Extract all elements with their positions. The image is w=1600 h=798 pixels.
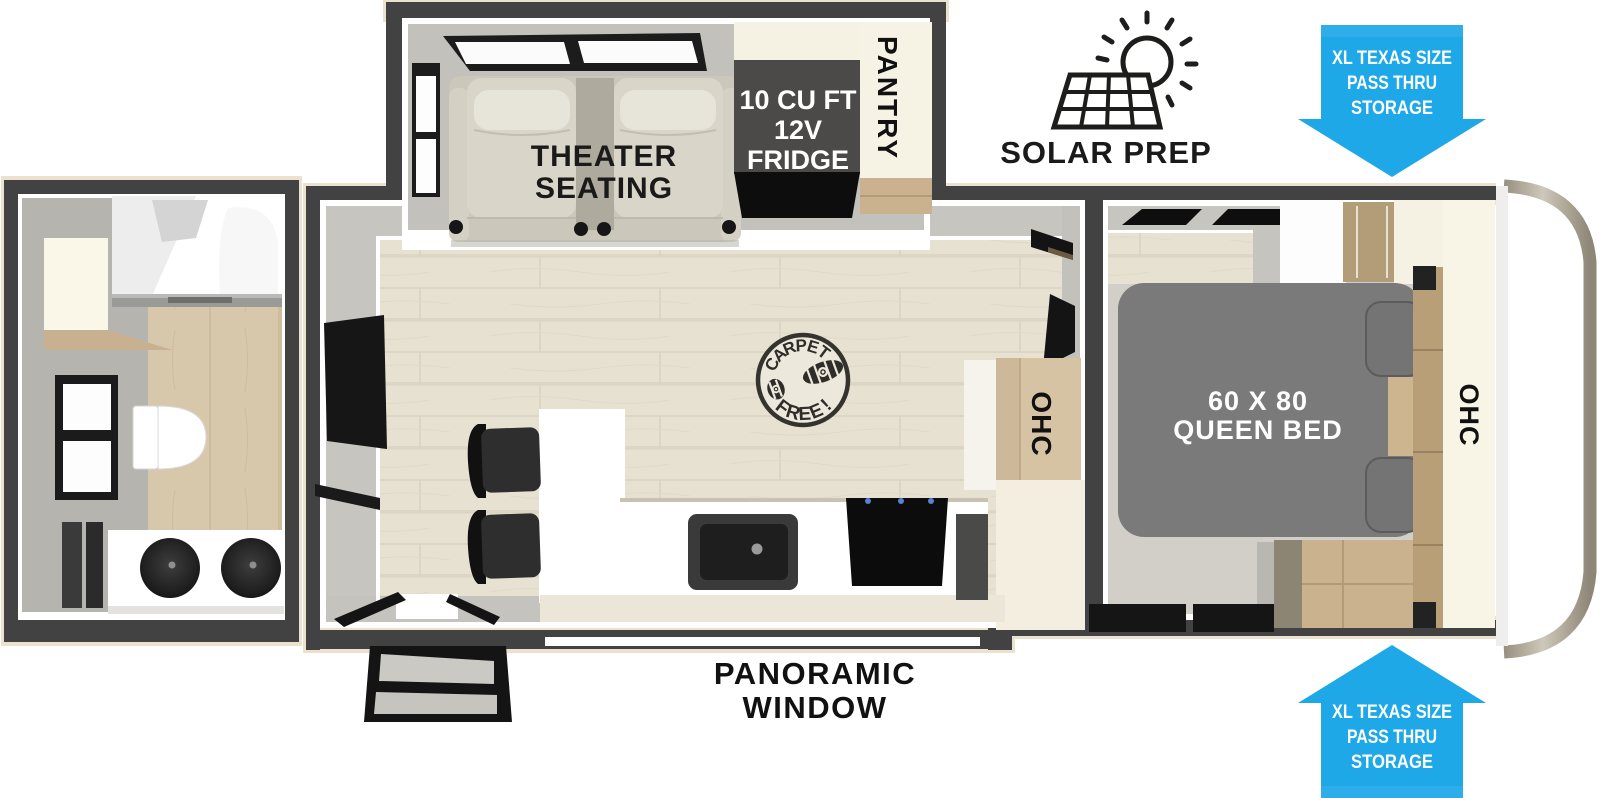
svg-text:THEATER: THEATER — [531, 140, 677, 173]
svg-text:PASS THRU: PASS THRU — [1347, 727, 1437, 748]
svg-text:STORAGE: STORAGE — [1351, 98, 1433, 119]
svg-text:OHC: OHC — [1454, 384, 1484, 447]
svg-text:SOLAR PREP: SOLAR PREP — [1000, 135, 1212, 170]
svg-text:60 X 80: 60 X 80 — [1208, 386, 1308, 416]
svg-text:PANORAMIC: PANORAMIC — [714, 656, 916, 691]
svg-text:10 CU FT: 10 CU FT — [739, 85, 857, 115]
svg-text:SEATING: SEATING — [535, 172, 673, 205]
svg-text:XL TEXAS SIZE: XL TEXAS SIZE — [1332, 48, 1452, 69]
svg-text:QUEEN BED: QUEEN BED — [1173, 415, 1343, 445]
svg-text:STORAGE: STORAGE — [1351, 752, 1433, 773]
svg-text:OHC: OHC — [1026, 391, 1057, 456]
svg-text:PASS THRU: PASS THRU — [1347, 73, 1437, 94]
svg-text:PANTRY: PANTRY — [872, 36, 903, 160]
svg-text:12V: 12V — [774, 115, 822, 145]
svg-text:XL TEXAS SIZE: XL TEXAS SIZE — [1332, 702, 1452, 723]
svg-text:FRIDGE: FRIDGE — [747, 145, 849, 175]
svg-text:WINDOW: WINDOW — [742, 690, 887, 725]
